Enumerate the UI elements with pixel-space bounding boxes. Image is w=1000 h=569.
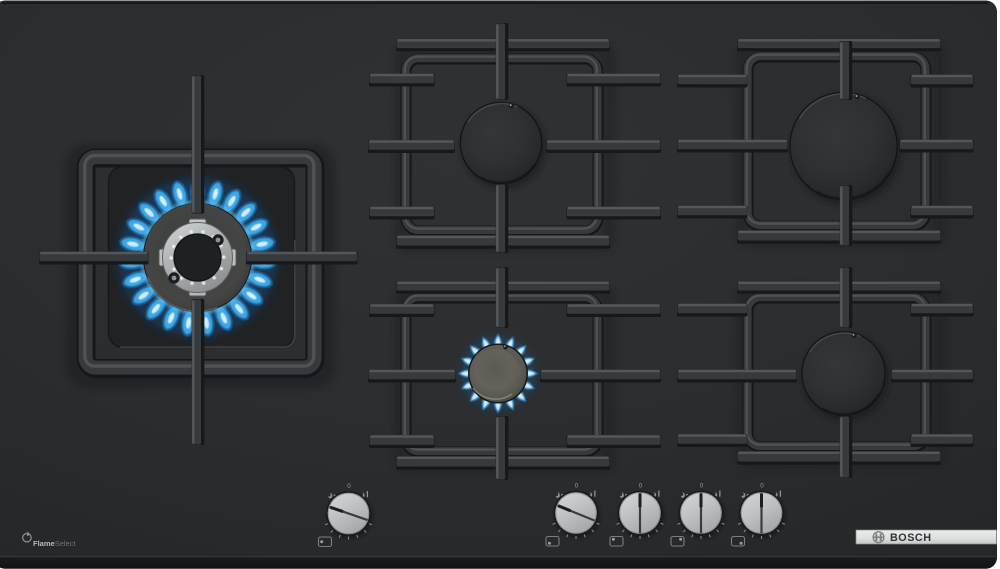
svg-text:BOSCH: BOSCH (890, 532, 932, 544)
svg-text:0: 0 (347, 483, 351, 490)
svg-text:FlameSelect: FlameSelect (33, 539, 76, 548)
svg-text:0: 0 (575, 483, 579, 490)
svg-text:0: 0 (639, 483, 643, 490)
svg-text:0: 0 (700, 483, 704, 490)
svg-text:0: 0 (760, 483, 764, 490)
